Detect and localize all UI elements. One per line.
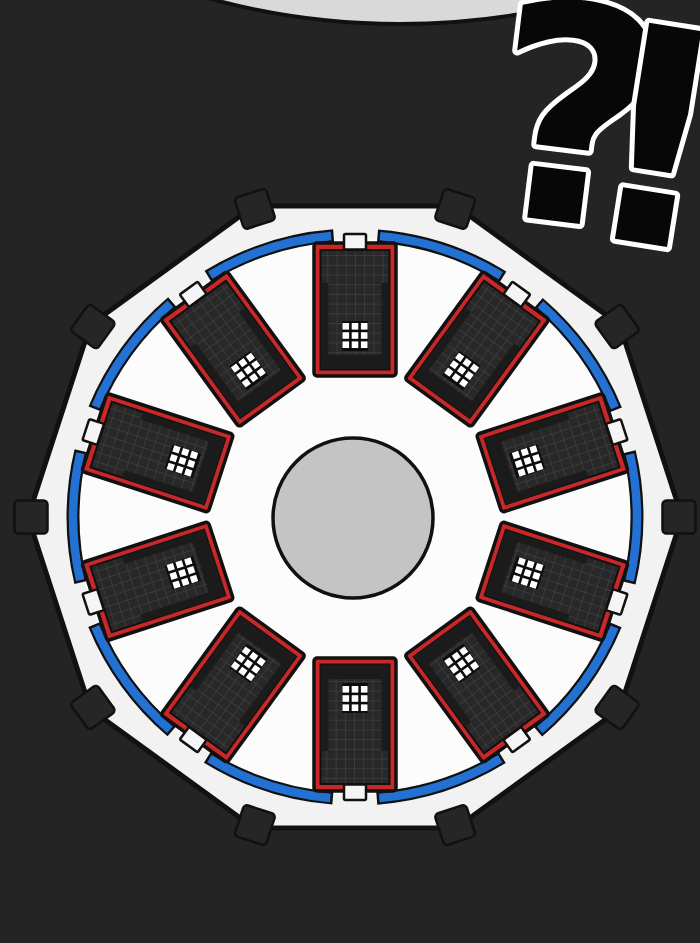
skylight-window xyxy=(352,686,359,693)
cell-block-5 xyxy=(314,658,396,800)
skylight-window xyxy=(361,704,368,711)
corner-block-0 xyxy=(663,501,696,534)
cell-block-wall-left xyxy=(321,283,329,356)
skylight-window xyxy=(361,323,368,330)
skylight-window xyxy=(343,686,350,693)
skylight-window xyxy=(352,341,359,348)
cell-block-wall-right xyxy=(382,283,390,356)
central-yard xyxy=(273,438,433,598)
outer-door xyxy=(344,234,366,250)
skylight-window xyxy=(352,323,359,330)
skylight-window xyxy=(361,332,368,339)
comic-panel: ? ! xyxy=(0,0,700,943)
cell-block-0 xyxy=(314,234,396,376)
cell-block-wall-inner xyxy=(321,665,390,680)
cell-block-wall-right xyxy=(321,679,329,752)
cell-block-wall-left xyxy=(382,679,390,752)
skylight-window xyxy=(343,332,350,339)
cell-block-roof xyxy=(321,250,390,370)
facility-illustration: ? ! xyxy=(0,0,700,943)
skylight-window xyxy=(352,695,359,702)
skylight-window xyxy=(361,341,368,348)
skylight-window xyxy=(352,704,359,711)
skylight-window xyxy=(343,695,350,702)
cell-block-wall-inner xyxy=(321,355,390,370)
corner-block-5 xyxy=(15,501,48,534)
skylight-window xyxy=(361,695,368,702)
skylight-window xyxy=(361,686,368,693)
skylight-window xyxy=(343,704,350,711)
skylight-window xyxy=(352,332,359,339)
shout-text-group: ? ! xyxy=(468,0,700,324)
cell-block-roof xyxy=(321,665,390,785)
skylight-window xyxy=(343,341,350,348)
skylight-window xyxy=(343,323,350,330)
outer-door xyxy=(344,785,366,801)
